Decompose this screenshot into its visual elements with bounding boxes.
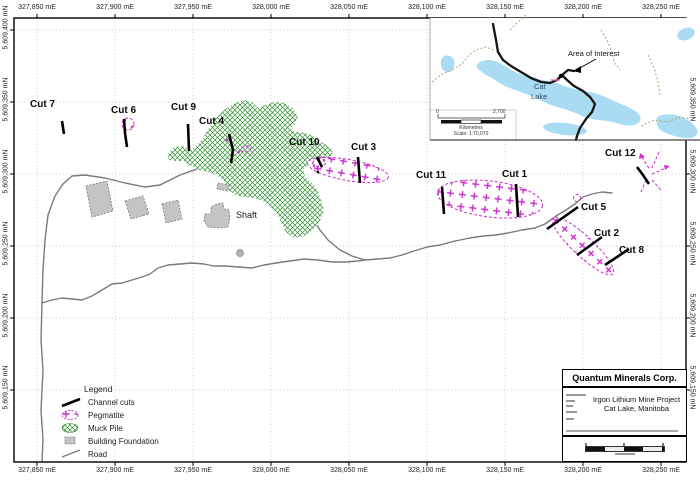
axis-top-label: 327,850 mE bbox=[9, 4, 65, 11]
axis-left-label: 5,609,300 mN bbox=[3, 144, 10, 200]
cut-label: Cut 3 bbox=[351, 142, 376, 153]
scale-bar bbox=[585, 446, 665, 452]
axis-bottom-label: 328,250 mE bbox=[633, 467, 689, 474]
company-name: Quantum Minerals Corp. bbox=[563, 370, 686, 388]
axis-left-label: 5,609,250 mN bbox=[3, 216, 10, 272]
shaft-label: Shaft bbox=[236, 210, 257, 220]
axis-bottom-label: 328,150 mE bbox=[477, 467, 533, 474]
inset-scale-ratio: Scale: 1:70,070 bbox=[441, 131, 501, 137]
axis-right-label: 5,609,350 mN bbox=[689, 72, 696, 128]
shaft-marker bbox=[237, 250, 244, 257]
cut-label: Cut 2 bbox=[594, 228, 619, 239]
cut-label: Cut 12 bbox=[605, 148, 636, 159]
axis-top-label: 327,950 mE bbox=[165, 4, 221, 11]
project-line1: Irgon Lithium Mine Project bbox=[589, 395, 684, 404]
building-foundations bbox=[86, 181, 230, 228]
title-block-main: Irgon Lithium Mine Project Cat Lake, Man… bbox=[563, 388, 686, 437]
axis-right-label: 5,609,300 mN bbox=[689, 144, 696, 200]
cut-label: Cut 5 bbox=[581, 202, 606, 213]
axis-bottom-label: 328,000 mE bbox=[243, 467, 299, 474]
axis-right-label: 5,609,150 mN bbox=[689, 360, 696, 416]
inset-scale-zero: 0 bbox=[436, 109, 439, 115]
cut-label: Cut 9 bbox=[171, 102, 196, 113]
lake-name-line1: Cat bbox=[534, 82, 546, 91]
channel-cut-lines bbox=[62, 119, 649, 265]
cut-label: Cut 10 bbox=[289, 137, 320, 148]
axis-right-label: 5,609,200 mN bbox=[689, 288, 696, 344]
axis-bottom-label: 328,200 mE bbox=[555, 467, 611, 474]
cut-label: Cut 11 bbox=[416, 170, 446, 181]
axis-top-label: 328,000 mE bbox=[243, 4, 299, 11]
axis-left-label: 5,609,200 mN bbox=[3, 288, 10, 344]
axis-top-label: 328,050 mE bbox=[321, 4, 377, 11]
axis-left-label: 5,609,400 mN bbox=[3, 0, 10, 56]
axis-bottom-label: 328,050 mE bbox=[321, 467, 377, 474]
inset-map bbox=[430, 15, 700, 140]
inset-site-knob bbox=[559, 74, 563, 78]
axis-bottom-label: 327,900 mE bbox=[87, 467, 143, 474]
legend-item-label: Channel cuts bbox=[88, 398, 135, 407]
area-of-interest-label: Area of Interest bbox=[568, 49, 619, 58]
legend-title: Legend bbox=[84, 384, 112, 394]
axis-left-label: 5,609,350 mN bbox=[3, 72, 10, 128]
axis-top-label: 328,100 mE bbox=[399, 4, 455, 11]
cut-label: Cut 4 bbox=[199, 116, 224, 127]
axis-right-label: 5,609,250 mN bbox=[689, 216, 696, 272]
axis-top-label: 328,250 mE bbox=[633, 4, 689, 11]
project-title: Irgon Lithium Mine Project Cat Lake, Man… bbox=[589, 395, 684, 413]
cut-label: Cut 1 bbox=[502, 169, 527, 180]
axis-top-label: 328,150 mE bbox=[477, 4, 533, 11]
cut10-dot bbox=[317, 171, 320, 174]
cut-label: Cut 8 bbox=[619, 245, 644, 256]
legend-symbols bbox=[62, 399, 80, 457]
axis-top-label: 327,900 mE bbox=[87, 4, 143, 11]
legend-item-label: Road bbox=[88, 450, 107, 459]
axis-top-label: 328,200 mE bbox=[555, 4, 611, 11]
lake-name-line2: Lake bbox=[531, 92, 547, 101]
legend-item-label: Building Foundation bbox=[88, 437, 159, 446]
title-block: Quantum Minerals Corp. Irgon Lithium Min… bbox=[562, 369, 687, 462]
legend-item-label: Muck Pile bbox=[88, 424, 123, 433]
project-line2: Cat Lake, Manitoba bbox=[589, 404, 684, 413]
title-block-scale bbox=[563, 437, 686, 459]
legend-item-label: Pegmatite bbox=[88, 411, 124, 420]
axis-left-label: 5,609,150 mN bbox=[3, 360, 10, 416]
axis-bottom-label: 327,950 mE bbox=[165, 467, 221, 474]
cut-label: Cut 7 bbox=[30, 99, 55, 110]
axis-bottom-label: 328,100 mE bbox=[399, 467, 455, 474]
map-page: 327,850 mE 327,900 mE 327,950 mE 328,000… bbox=[0, 0, 700, 486]
inset-scale-max: 2,700 bbox=[493, 109, 506, 115]
cut-label: Cut 6 bbox=[111, 105, 136, 116]
axis-bottom-label: 327,850 mE bbox=[9, 467, 65, 474]
